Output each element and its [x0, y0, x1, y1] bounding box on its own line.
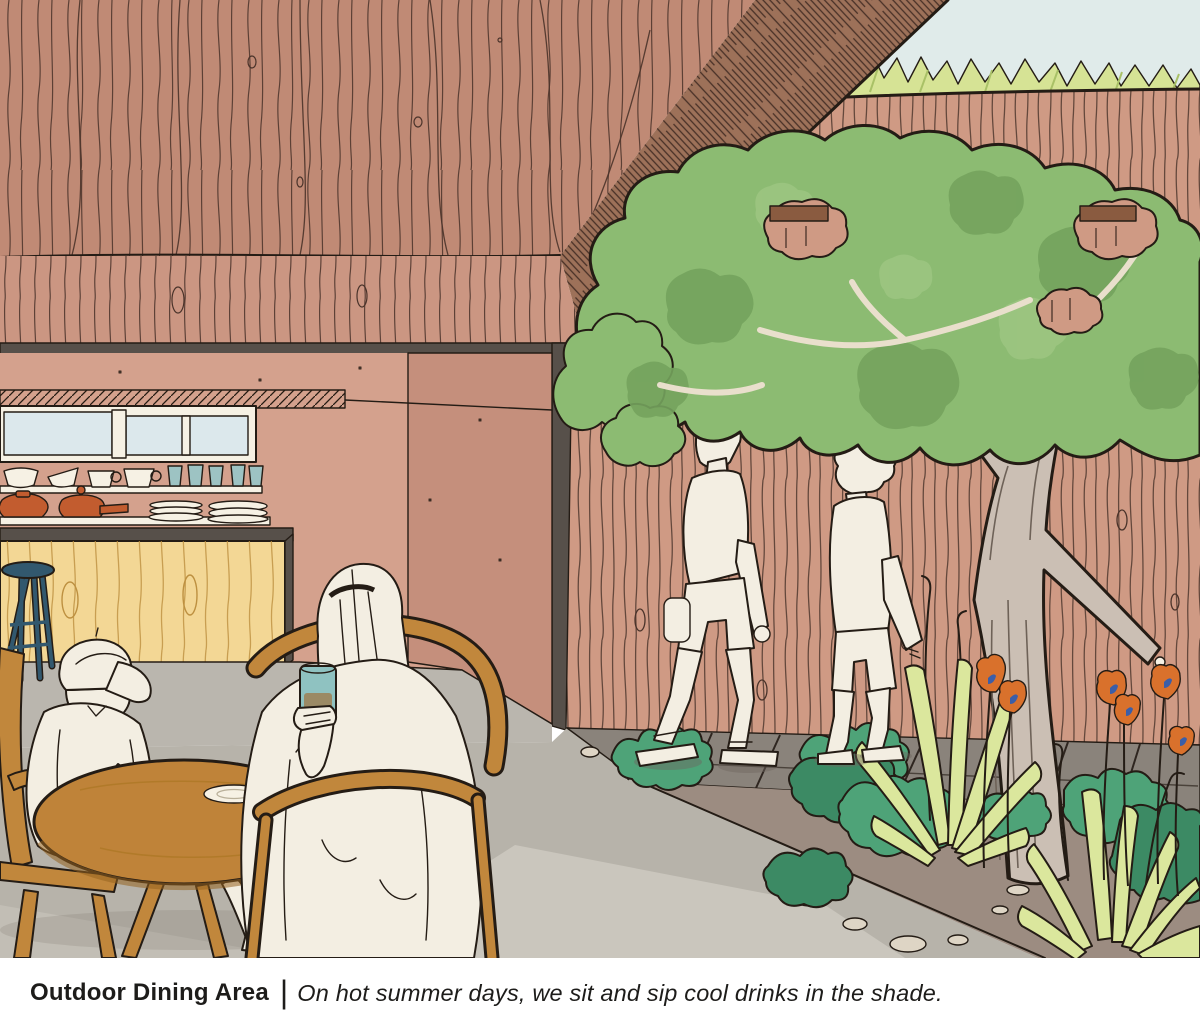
- outdoor-dining-illustration: [0, 0, 1200, 1028]
- caption-text: On hot summer days, we sit and sip cool …: [297, 980, 943, 1007]
- illustration-page: Outdoor Dining Area | On hot summer days…: [0, 0, 1200, 1028]
- caption-separator: |: [280, 974, 288, 1011]
- drink-glass: [294, 663, 336, 730]
- caption-title: Outdoor Dining Area: [30, 979, 269, 1007]
- caption: Outdoor Dining Area | On hot summer days…: [0, 958, 1200, 1028]
- kitchen-window: [0, 406, 256, 462]
- tree-canopy: [553, 125, 1200, 466]
